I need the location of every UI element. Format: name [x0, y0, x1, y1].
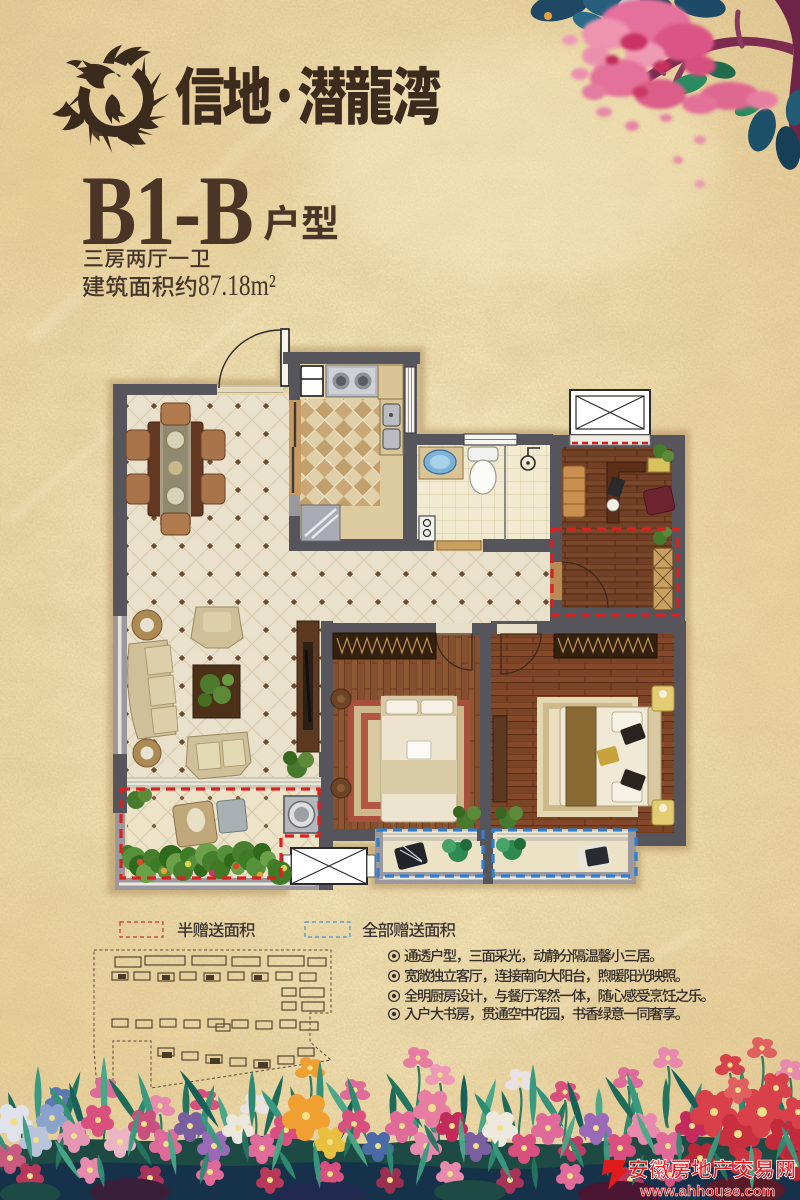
- svg-text:www.ahhouse.com: www.ahhouse.com: [639, 1183, 775, 1200]
- svg-text:87.18m²: 87.18m²: [198, 268, 276, 301]
